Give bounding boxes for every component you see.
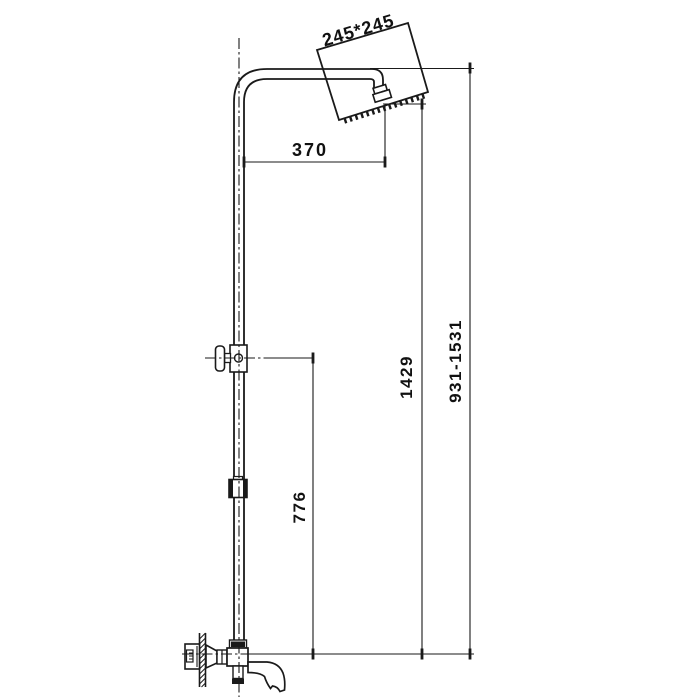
mixer-handle [185,644,227,669]
label-upper-height: 1429 [397,355,416,399]
valve-top-nut-fill [231,642,245,648]
label-overall-height-range: 931-1531 [446,319,465,403]
pipe-union [229,477,247,498]
union-side-right [243,480,247,498]
wall-mount [200,633,206,687]
valve-lower-nut-fill [232,679,244,685]
label-head-size: 245*245 [320,10,397,50]
handle-cone [206,645,217,668]
wall-hatching [200,633,206,687]
centerlines [182,38,270,697]
label-lower-height: 776 [290,491,309,524]
union-side-left [229,480,233,498]
pipe-inner-edge [244,79,374,641]
mixer-valve [227,640,248,684]
valve-lower-tube [233,666,243,679]
valve-body [227,648,248,666]
dimension-ticks [243,63,472,660]
label-arm-projection: 370 [292,140,328,160]
shower-column-technical-drawing: 245*245 370 776 1429 931-1531 [0,0,700,700]
dimension-lines [244,68,474,654]
tub-spout [248,662,285,692]
diagram-page: 245*245 370 776 1429 931-1531 [0,0,700,700]
